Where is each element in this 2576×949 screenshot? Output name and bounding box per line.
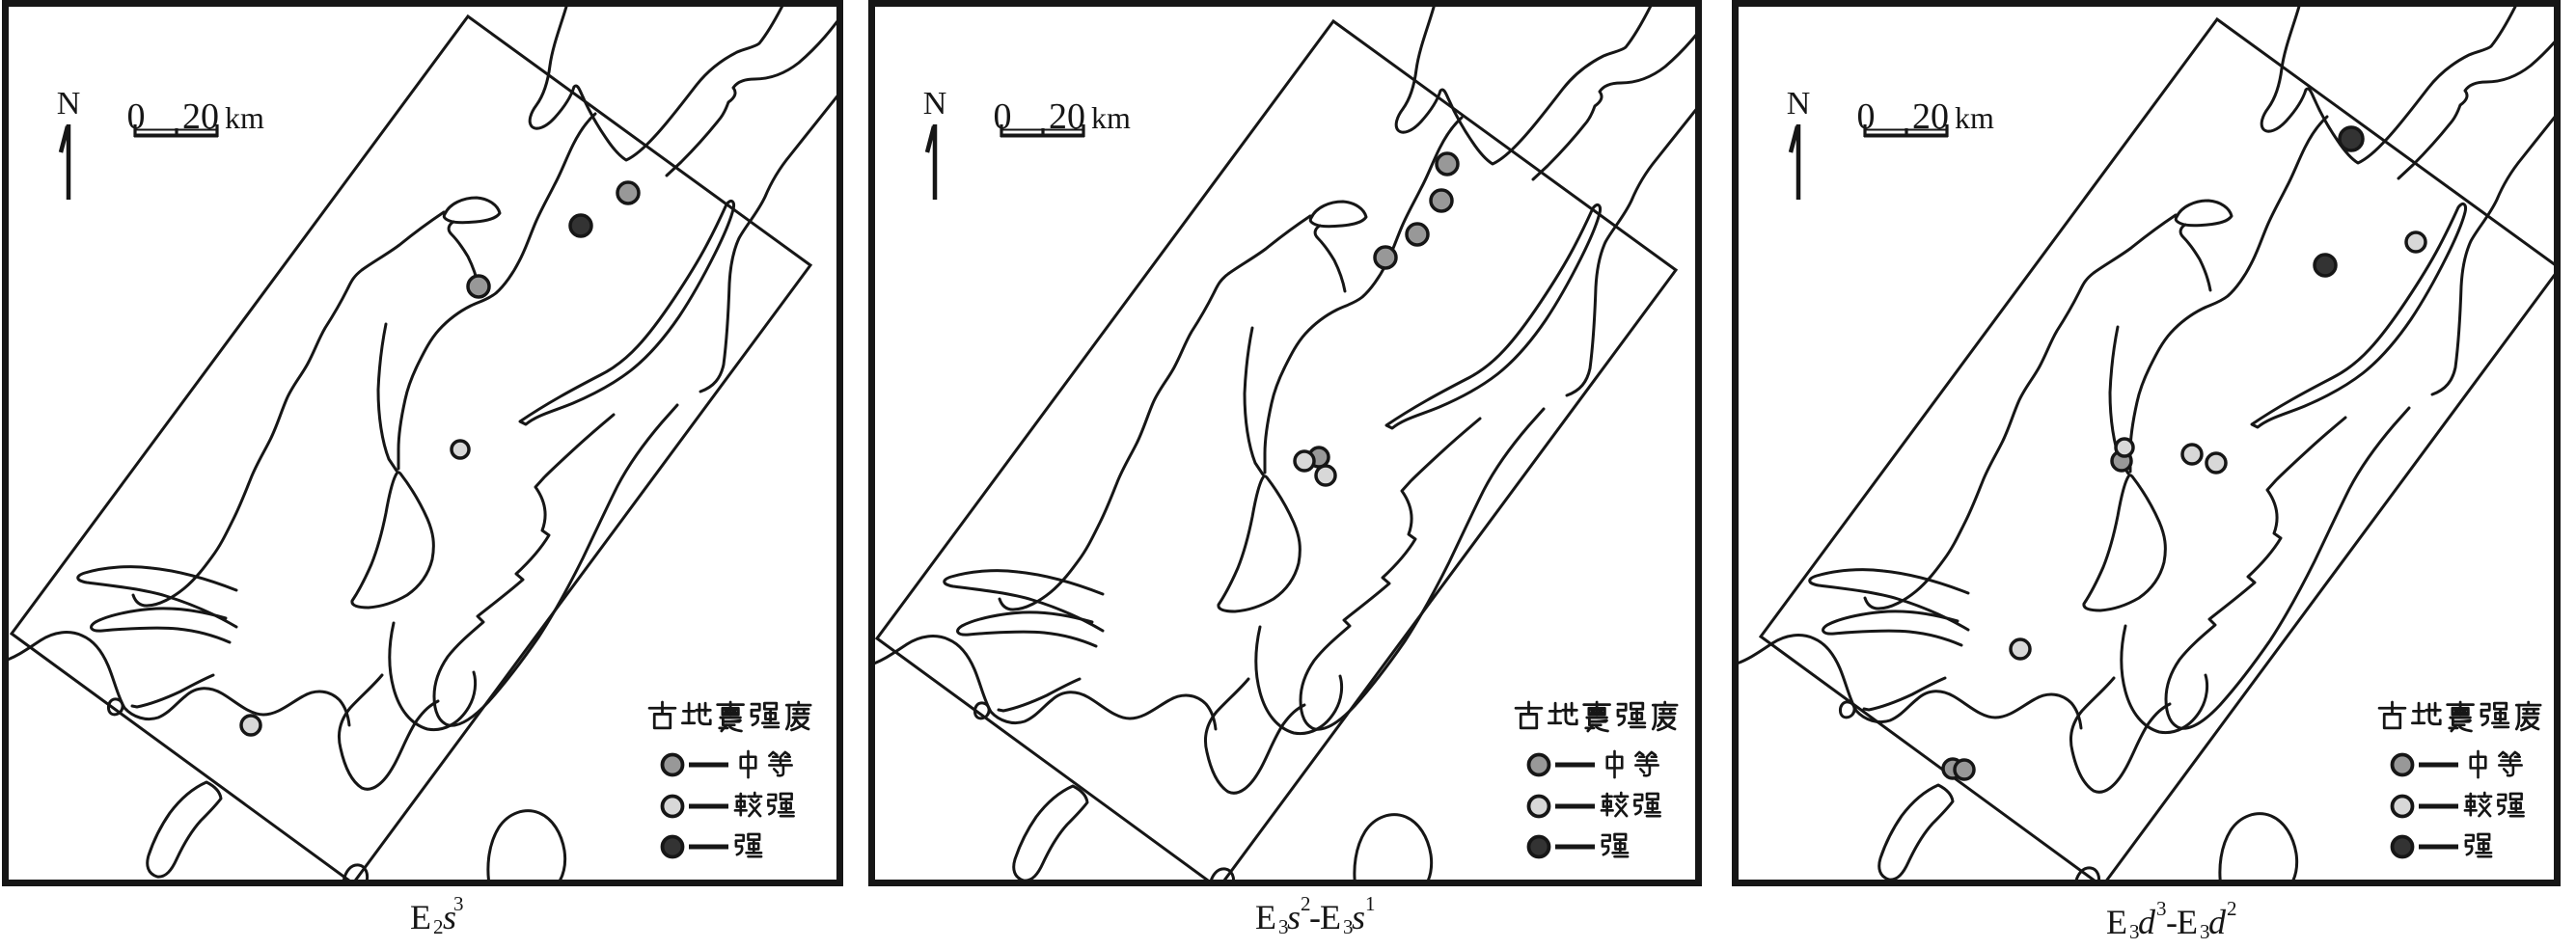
svg-text:20: 20 [1049,96,1085,137]
svg-text:E: E [410,898,431,936]
svg-text:3: 3 [2156,897,2167,920]
svg-text:N: N [923,86,947,122]
svg-text:0: 0 [127,96,146,137]
svg-text:N: N [1787,86,1811,122]
svg-text:20: 20 [1912,96,1949,137]
svg-text:E: E [2177,903,2198,941]
svg-text:2: 2 [433,915,444,938]
svg-text:km: km [225,100,264,135]
svg-text:3: 3 [453,892,464,915]
svg-text:1: 1 [1365,892,1376,915]
svg-text:2: 2 [2227,897,2237,920]
svg-text:0: 0 [1857,96,1876,137]
svg-text:E: E [1320,898,1341,936]
svg-text:20: 20 [182,96,219,137]
svg-text:N: N [57,86,81,122]
svg-text:d: d [2138,903,2156,941]
svg-text:d: d [2208,903,2227,941]
svg-text:km: km [1091,100,1131,135]
svg-text:E: E [1255,898,1276,936]
svg-text:E: E [2106,903,2127,941]
svg-text:km: km [1955,100,1994,135]
svg-text:0: 0 [994,96,1012,137]
svg-text:s: s [1352,898,1365,936]
svg-text:s: s [1287,898,1301,936]
